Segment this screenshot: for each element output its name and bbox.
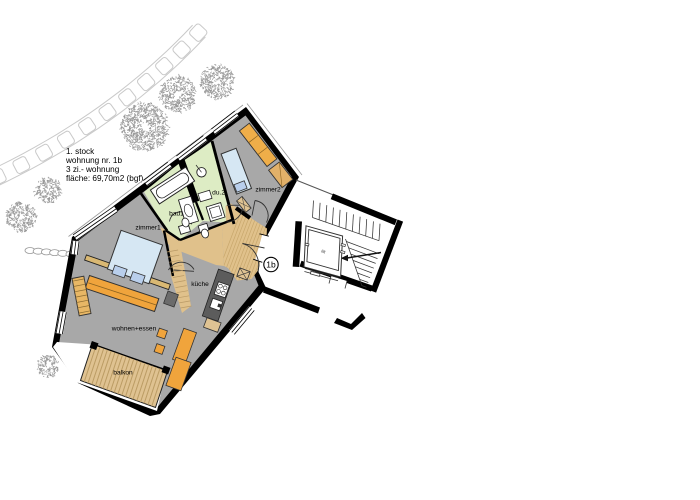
svg-text:fläche: 69,70m2 (bgf): fläche: 69,70m2 (bgf) [66,174,144,183]
svg-text:wohnung nr. 1b: wohnung nr. 1b [65,156,122,165]
svg-text:du.2: du.2 [212,190,225,197]
svg-text:zimmer2: zimmer2 [255,187,281,194]
svg-text:bad1: bad1 [169,211,184,218]
svg-text:balkon: balkon [113,370,133,377]
svg-text:zimmer1: zimmer1 [135,225,161,232]
svg-text:küche: küche [191,281,209,288]
svg-text:wohnen+essen: wohnen+essen [111,326,157,333]
svg-text:3 zi.- wohnung: 3 zi.- wohnung [66,165,120,174]
svg-text:1b: 1b [266,260,276,270]
svg-text:1. stock: 1. stock [66,147,95,156]
